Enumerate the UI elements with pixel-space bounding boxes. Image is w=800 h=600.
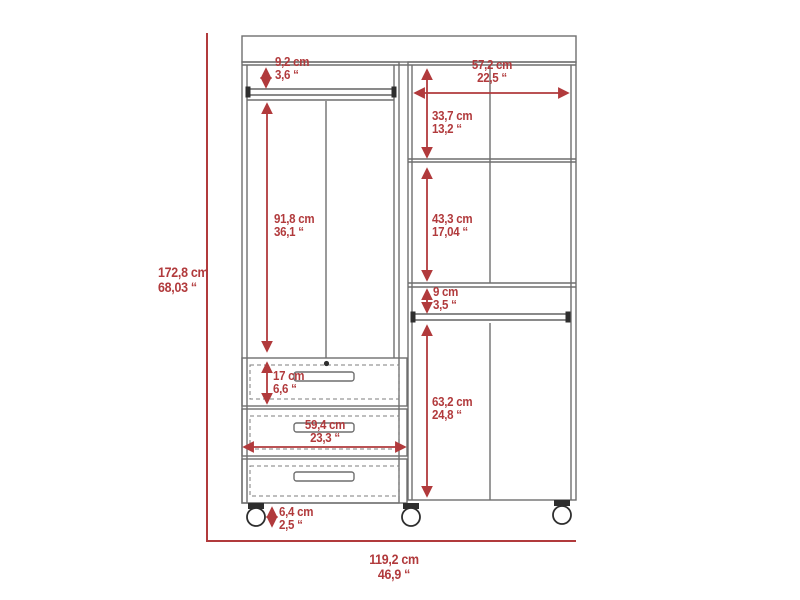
dim-caster-height: 6,4 cm 2,5 “: [279, 506, 313, 532]
caster-wheel-icon: [553, 506, 571, 524]
caster-wheel-icon: [402, 508, 420, 526]
furniture-drawing: [0, 0, 800, 600]
dimension-diagram: 9,2 cm 3,6 “ 57,2 cm 22,5 “ 33,7 cm 13,2…: [0, 0, 800, 600]
dim-value-in: 13,2 “: [432, 123, 472, 136]
dim-value-in: 24,8 “: [432, 409, 472, 422]
dim-value-in: 46,9 “: [369, 567, 419, 582]
rod-bracket-icon: [566, 312, 571, 323]
rod-bracket-icon: [411, 312, 416, 323]
dim-top-rod-offset: 9,2 cm 3,6 “: [275, 56, 309, 82]
rod-bracket-icon: [246, 87, 251, 98]
wardrobe-outline: [242, 36, 576, 503]
dim-value-in: 2,5 “: [279, 519, 313, 532]
dim-drawer-width: 59,4 cm 23,3 “: [305, 419, 345, 445]
dim-right-middle-shelf-height: 43,3 cm 17,04 “: [432, 213, 472, 239]
dim-right-rod-gap: 9 cm 3,5 “: [433, 286, 458, 312]
keyhole-icon: [324, 361, 329, 366]
dim-value-in: 3,6 “: [275, 69, 309, 82]
dim-value-in: 68,03 “: [158, 280, 208, 295]
drawer-handle: [294, 472, 354, 481]
dim-total-height: 172,8 cm 68,03 “: [158, 265, 208, 295]
dim-drawer-height: 17 cm 6,6 “: [273, 370, 304, 396]
dim-right-section-width: 57,2 cm 22,5 “: [472, 59, 512, 85]
dim-right-top-shelf-height: 33,7 cm 13,2 “: [432, 110, 472, 136]
dim-value-in: 6,6 “: [273, 383, 304, 396]
dim-value-in: 36,1 “: [274, 226, 314, 239]
dim-right-door-height: 63,2 cm 24,8 “: [432, 396, 472, 422]
dim-total-width: 119,2 cm 46,9 “: [369, 552, 419, 582]
dim-value-in: 22,5 “: [472, 72, 512, 85]
rod-bracket-icon: [392, 87, 397, 98]
dim-value-in: 3,5 “: [433, 299, 458, 312]
dim-value-in: 23,3 “: [305, 432, 345, 445]
dimension-arrows: [244, 69, 568, 526]
dim-value-cm: 172,8 cm: [158, 265, 208, 280]
dim-value-cm: 119,2 cm: [369, 552, 419, 567]
caster-wheel-icon: [247, 508, 265, 526]
dim-value-in: 17,04 “: [432, 226, 472, 239]
dim-left-hanging-height: 91,8 cm 36,1 “: [274, 213, 314, 239]
